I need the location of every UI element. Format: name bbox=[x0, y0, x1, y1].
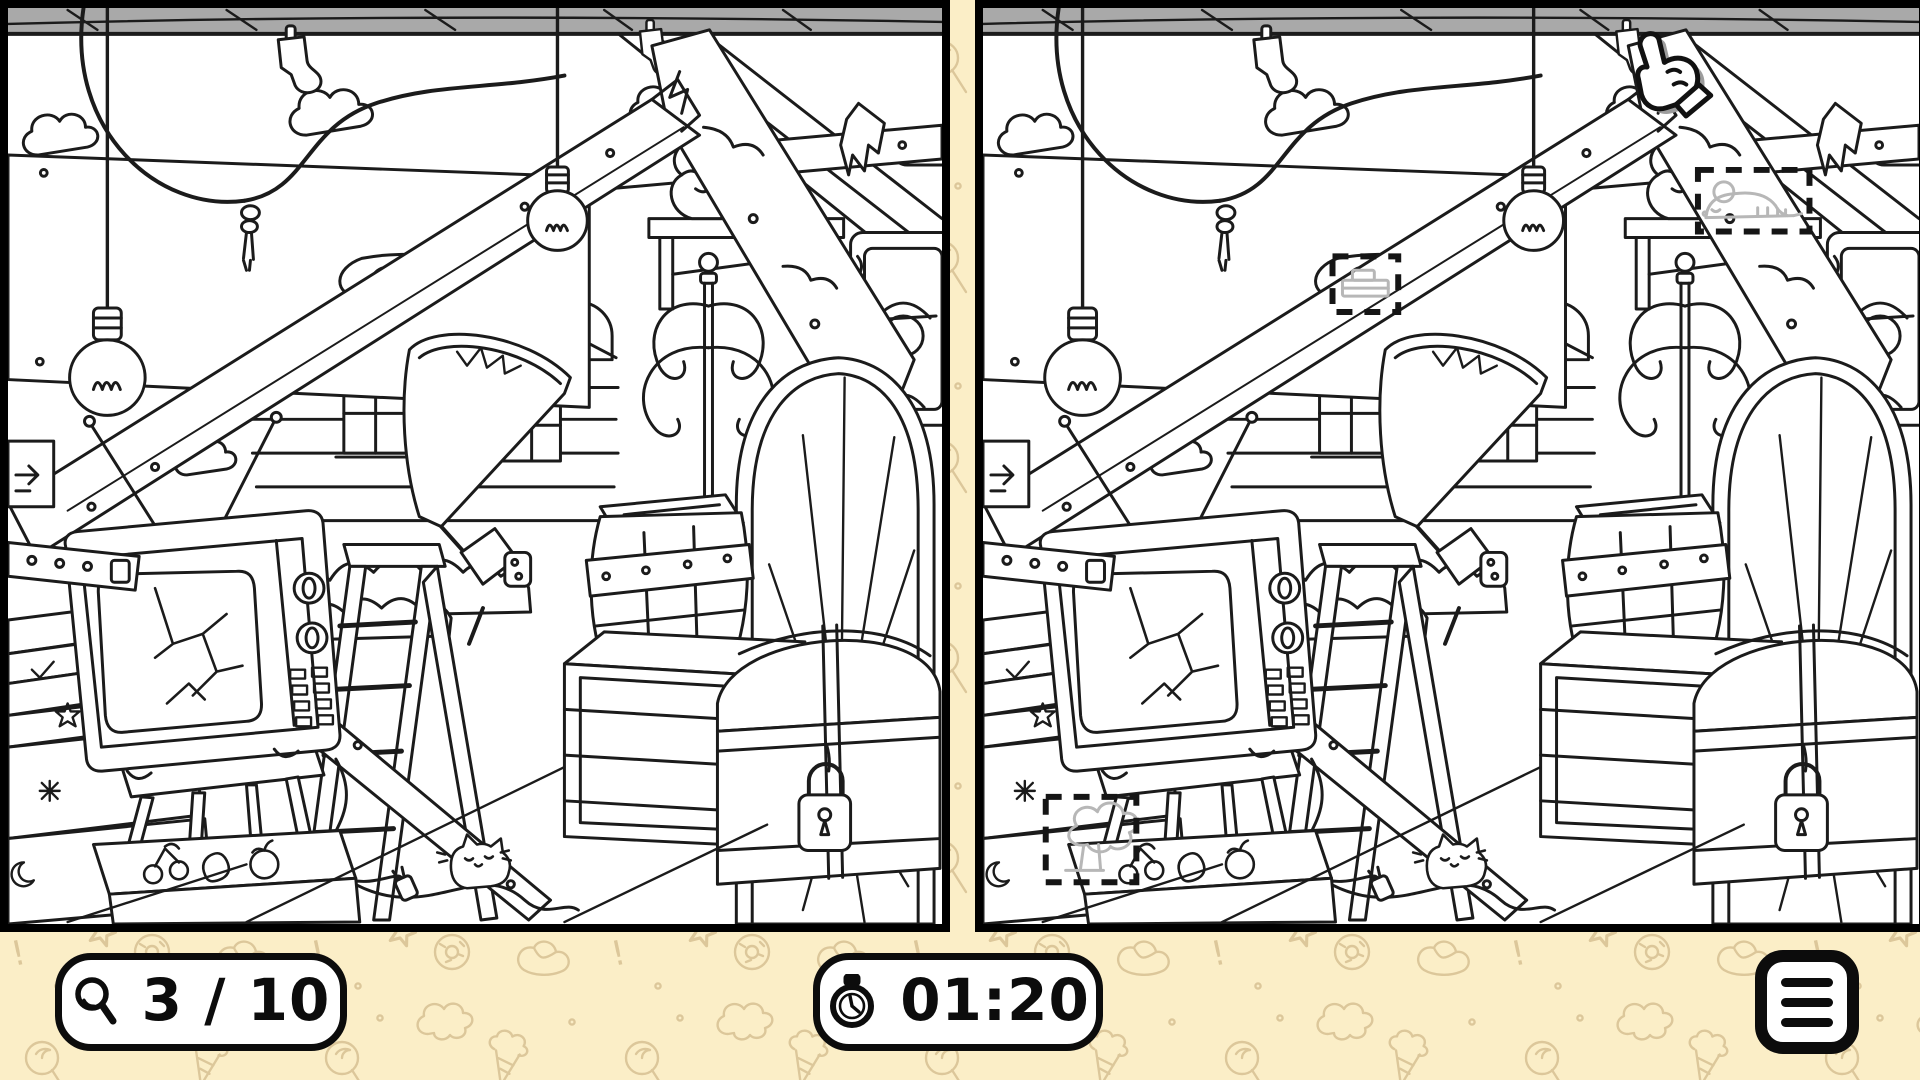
game-stage: ? ! bbox=[0, 0, 1920, 1080]
right-scene-panel[interactable] bbox=[975, 0, 1920, 932]
hamburger-menu-icon bbox=[1781, 978, 1833, 1027]
left-scene-panel[interactable] bbox=[0, 0, 950, 932]
menu-button[interactable] bbox=[1755, 950, 1859, 1054]
right-scene-art bbox=[983, 8, 1919, 924]
stopwatch-icon bbox=[826, 974, 878, 1030]
found-counter-value: 3 / 10 bbox=[142, 966, 331, 1034]
timer-value: 01:20 bbox=[900, 966, 1090, 1034]
left-scene-art bbox=[8, 8, 942, 924]
timer: 01:20 bbox=[813, 953, 1103, 1051]
found-counter: 3 / 10 bbox=[55, 953, 347, 1051]
magnifier-icon bbox=[72, 976, 120, 1028]
